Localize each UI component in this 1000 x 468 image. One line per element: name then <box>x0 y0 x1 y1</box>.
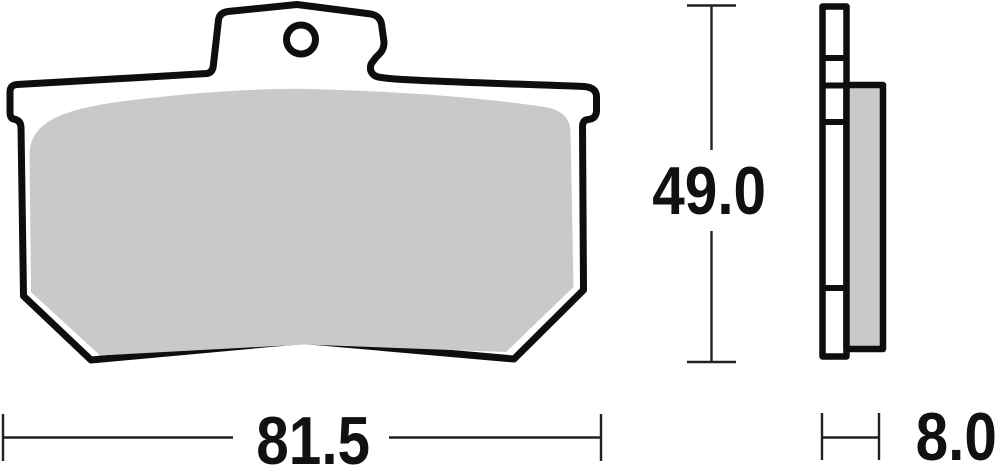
front-view <box>10 5 597 361</box>
dimension-thickness <box>822 413 879 460</box>
side-view <box>820 7 883 357</box>
friction-material-side <box>847 85 884 349</box>
drawing-canvas <box>0 0 1000 468</box>
brake-pad-technical-drawing: 49.0 81.5 8.0 <box>0 0 1000 468</box>
dimension-height <box>687 6 736 363</box>
friction-material-front <box>30 89 574 356</box>
mounting-hole <box>287 25 316 54</box>
dimension-width <box>3 414 601 461</box>
